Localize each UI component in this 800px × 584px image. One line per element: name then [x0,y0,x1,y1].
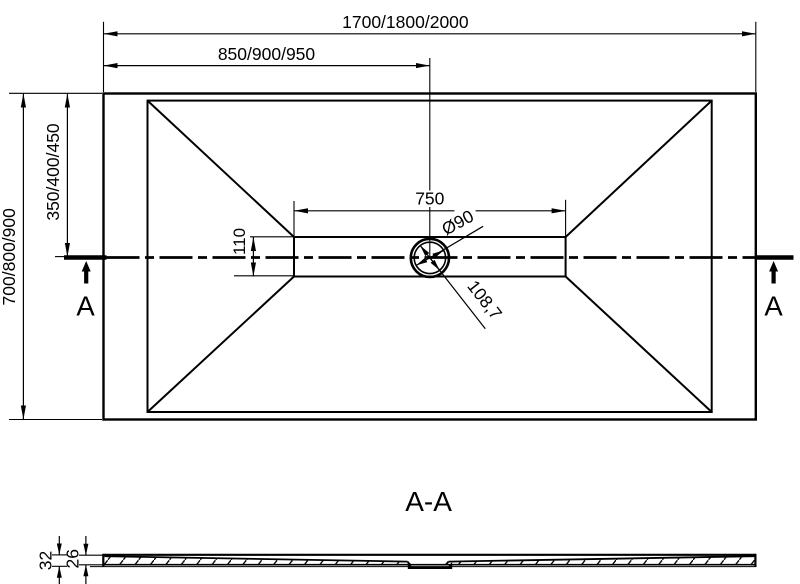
svg-text:32: 32 [36,551,56,570]
svg-text:108,7: 108,7 [463,276,506,323]
svg-text:750: 750 [415,189,444,209]
svg-text:110: 110 [230,228,249,255]
svg-text:A: A [76,291,95,322]
svg-text:350/400/450: 350/400/450 [43,123,63,221]
svg-text:A: A [764,291,783,322]
svg-text:26: 26 [63,549,83,568]
svg-text:850/900/950: 850/900/950 [218,44,316,64]
svg-text:700/800/900: 700/800/900 [0,208,19,306]
svg-text:1700/1800/2000: 1700/1800/2000 [342,12,469,32]
svg-text:A-A: A-A [405,486,452,517]
